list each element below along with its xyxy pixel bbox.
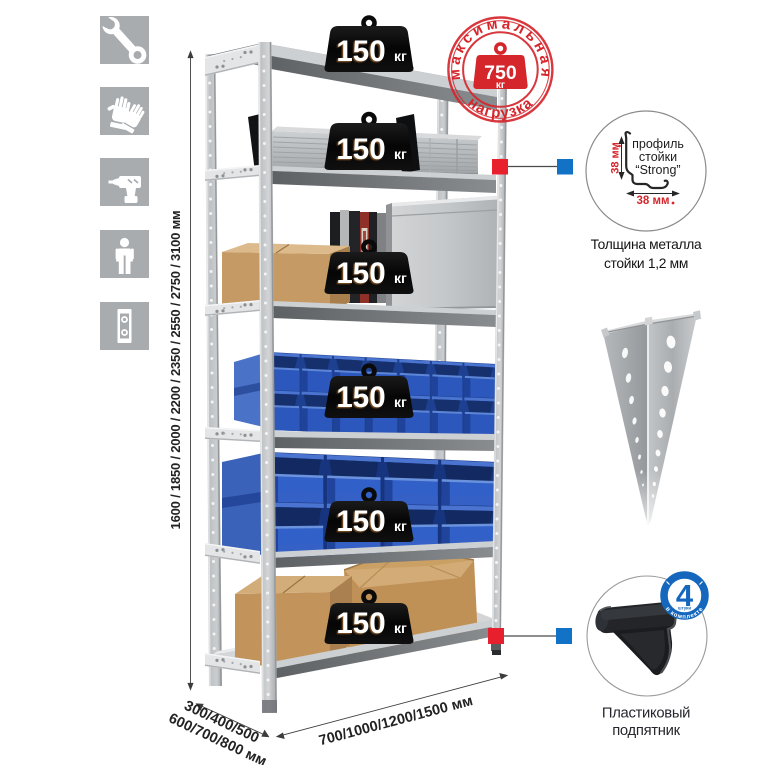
svg-text:150: 150 [336, 505, 385, 538]
svg-text:Пластиковый: Пластиковый [602, 706, 690, 722]
svg-text:150: 150 [336, 257, 385, 290]
svg-text:кг: кг [394, 518, 407, 534]
svg-text:штуки: штуки [678, 606, 691, 611]
svg-text:“Strong”: “Strong” [635, 163, 680, 177]
svg-text:150: 150 [336, 607, 385, 640]
svg-text:подпятник: подпятник [612, 723, 680, 739]
svg-text:кг: кг [394, 394, 407, 410]
svg-text:1600 / 1850 / 2000 / 2200 / 23: 1600 / 1850 / 2000 / 2200 / 2350 / 2550 … [168, 211, 183, 530]
svg-text:150: 150 [336, 133, 385, 166]
svg-text:Толщина металла: Толщина металла [591, 237, 702, 252]
svg-text:38 мм: 38 мм [636, 195, 669, 207]
svg-text:кг: кг [496, 80, 505, 91]
svg-text:150: 150 [336, 381, 385, 414]
svg-text:150: 150 [336, 35, 385, 68]
svg-text:стойки: стойки [639, 150, 677, 164]
svg-text:кг: кг [394, 48, 407, 64]
svg-text:стойки 1,2 мм: стойки 1,2 мм [604, 256, 688, 271]
svg-text:кг: кг [394, 620, 407, 636]
svg-text:профиль: профиль [632, 137, 684, 151]
svg-text:кг: кг [394, 270, 407, 286]
svg-text:кг: кг [394, 146, 407, 162]
